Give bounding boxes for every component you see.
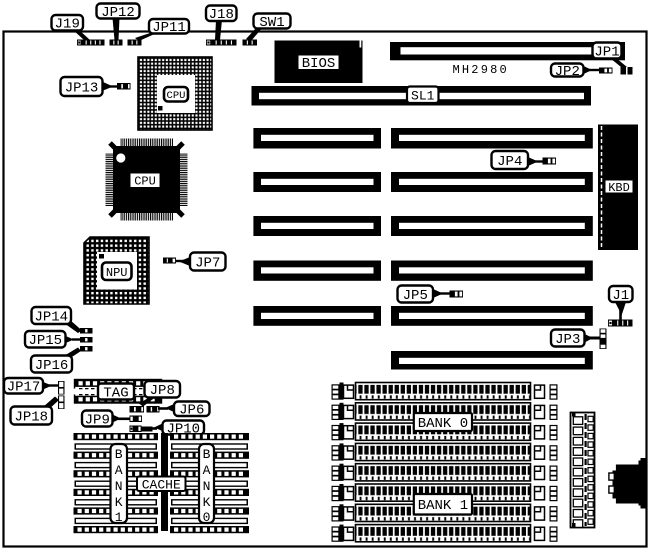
svg-text:JP17: JP17 bbox=[7, 380, 41, 396]
svg-text:J19: J19 bbox=[55, 17, 80, 33]
svg-text:K: K bbox=[203, 495, 211, 510]
svg-text:A: A bbox=[115, 463, 123, 478]
svg-text:A: A bbox=[203, 463, 211, 478]
svg-text:NPU: NPU bbox=[106, 266, 128, 280]
svg-text:JP1: JP1 bbox=[594, 44, 619, 60]
svg-text:JP9: JP9 bbox=[85, 412, 110, 428]
svg-text:JP2: JP2 bbox=[555, 64, 580, 80]
svg-text:CACHE: CACHE bbox=[142, 477, 181, 492]
svg-text:JP8: JP8 bbox=[150, 383, 175, 399]
svg-text:JP12: JP12 bbox=[101, 5, 135, 21]
svg-text:N: N bbox=[203, 479, 211, 494]
svg-text:JP16: JP16 bbox=[35, 358, 69, 374]
svg-text:CPU: CPU bbox=[167, 90, 186, 102]
svg-text:B: B bbox=[115, 447, 123, 462]
svg-text:J18: J18 bbox=[209, 7, 234, 23]
svg-text:B: B bbox=[203, 447, 211, 462]
svg-text:SW1: SW1 bbox=[259, 15, 284, 31]
svg-text:JP14: JP14 bbox=[34, 309, 68, 325]
svg-text:BIOS: BIOS bbox=[302, 56, 336, 72]
svg-text:SL1: SL1 bbox=[411, 88, 435, 103]
svg-text:JP13: JP13 bbox=[65, 80, 99, 96]
svg-text:JP5: JP5 bbox=[403, 288, 428, 304]
svg-text:KBD: KBD bbox=[608, 181, 630, 195]
svg-text:JP4: JP4 bbox=[497, 154, 522, 170]
svg-text:BANK 0: BANK 0 bbox=[418, 416, 468, 432]
svg-text:JP3: JP3 bbox=[555, 332, 580, 348]
svg-text:BANK 1: BANK 1 bbox=[418, 498, 468, 514]
svg-text:JP6: JP6 bbox=[179, 403, 204, 419]
svg-text:0: 0 bbox=[203, 510, 211, 525]
svg-text:CPU: CPU bbox=[134, 175, 156, 189]
svg-text:JP7: JP7 bbox=[195, 255, 220, 271]
svg-text:JP15: JP15 bbox=[28, 333, 62, 349]
svg-text:JP18: JP18 bbox=[14, 409, 48, 425]
svg-text:J1: J1 bbox=[612, 288, 629, 304]
svg-text:K: K bbox=[115, 495, 123, 510]
svg-text:MH2980: MH2980 bbox=[453, 63, 509, 77]
svg-text:TAG: TAG bbox=[103, 385, 128, 401]
svg-text:JP11: JP11 bbox=[152, 20, 186, 36]
svg-text:1: 1 bbox=[115, 510, 123, 525]
svg-text:N: N bbox=[115, 479, 123, 494]
